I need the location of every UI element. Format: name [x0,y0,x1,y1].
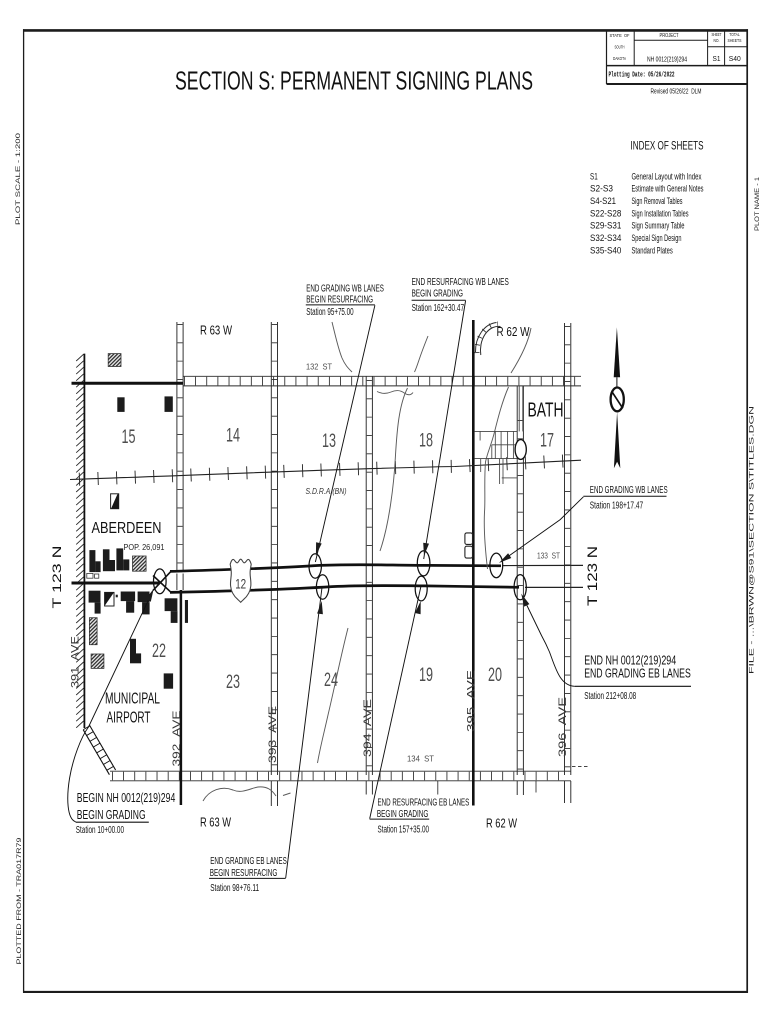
svg-text:NO.: NO. [714,38,720,44]
svg-text:SHEET: SHEET [712,32,722,38]
svg-text:395 AVE: 395 AVE [465,670,477,732]
svg-text:Station 212+08.08: Station 212+08.08 [584,691,636,702]
svg-text:END GRADING WB LANES: END GRADING WB LANES [306,283,384,294]
svg-text:General Layout with Index: General Layout with Index [632,171,702,181]
svg-text:Plotting Date: 05/26/2022: Plotting Date: 05/26/2022 [609,72,675,80]
svg-text:393 AVE: 393 AVE [267,706,279,763]
svg-text:23: 23 [226,672,240,693]
svg-text:BEGIN GRADING: BEGIN GRADING [412,288,463,299]
svg-text:S32-S34: S32-S34 [590,233,621,243]
svg-text:Station 95+75.00: Station 95+75.00 [306,307,354,318]
svg-text:END RESURFACING WB LANES: END RESURFACING WB LANES [412,277,510,288]
svg-text:394 AVE: 394 AVE [362,699,374,757]
svg-text:17: 17 [540,431,554,452]
svg-text:END GRADING EB LANES: END GRADING EB LANES [210,856,287,867]
svg-text:20: 20 [488,665,502,686]
svg-text:STATE OF: STATE OF [610,33,630,39]
svg-text:POP. 26,091: POP. 26,091 [124,542,165,552]
svg-text:BEGIN NH 0012(219)294: BEGIN NH 0012(219)294 [77,790,176,805]
svg-text:PLOT NAME - 1: PLOT NAME - 1 [754,176,761,231]
svg-text:AIRPORT: AIRPORT [107,710,151,727]
svg-text:BEGIN RESURFACING: BEGIN RESURFACING [306,295,373,306]
svg-text:R 63 W: R 63 W [200,815,232,830]
svg-text:18: 18 [419,431,433,452]
svg-text:S2-S3: S2-S3 [590,184,613,194]
svg-text:PLOTTED FROM - TRA017R79: PLOTTED FROM - TRA017R79 [16,837,23,965]
svg-text:BATH: BATH [528,400,564,422]
svg-text:S40: S40 [729,54,741,63]
svg-text:15: 15 [122,427,136,448]
svg-text:Sign Removal Tables: Sign Removal Tables [632,196,683,206]
svg-text:Estimate with General Notes: Estimate with General Notes [632,184,704,194]
svg-text:S4-S21: S4-S21 [590,196,616,206]
svg-text:DAKOTA: DAKOTA [613,56,626,62]
svg-text:24: 24 [324,670,338,691]
svg-text:Station 162+30.47: Station 162+30.47 [412,303,465,314]
svg-text:Revised 05/26/22 DLM: Revised 05/26/22 DLM [651,86,702,95]
svg-text:Station 98+76.11: Station 98+76.11 [210,883,259,894]
svg-text:END GRADING WB LANES: END GRADING WB LANES [590,485,668,496]
svg-text:SOUTH: SOUTH [615,45,625,51]
svg-text:19: 19 [419,665,433,686]
svg-text:FILE - ...\BRWN@S91\SECTION S\: FILE - ...\BRWN@S91\SECTION S\TITLES.DGN [749,405,756,674]
svg-text:134 ST: 134 ST [407,754,434,764]
svg-text:PROJECT: PROJECT [660,33,680,39]
svg-text:396 AVE: 396 AVE [557,697,569,757]
svg-text:R 62 W: R 62 W [497,324,531,339]
svg-text:T 123 N: T 123 N [584,546,600,606]
svg-text:Special Sign Design: Special Sign Design [632,233,682,243]
svg-text:T 123 N: T 123 N [52,546,64,609]
svg-text:BEGIN RESURFACING: BEGIN RESURFACING [210,868,278,879]
svg-text:Sign Summary Table: Sign Summary Table [632,221,685,231]
svg-text:END GRADING EB LANES: END GRADING EB LANES [584,665,691,680]
svg-text:MUNICIPAL: MUNICIPAL [105,691,160,708]
svg-text:NH 0012(219)294: NH 0012(219)294 [647,54,687,63]
svg-text:BEGIN GRADING: BEGIN GRADING [377,809,429,820]
svg-text:PLOT SCALE - 1:200: PLOT SCALE - 1:200 [15,132,22,225]
svg-text:R 62 W: R 62 W [486,816,518,831]
svg-text:Station 10+00.00: Station 10+00.00 [76,825,125,836]
svg-text:S29-S31: S29-S31 [590,221,621,231]
svg-text:BEGIN GRADING: BEGIN GRADING [77,807,146,822]
svg-text:S22-S28: S22-S28 [590,208,621,218]
svg-text:SHEETS: SHEETS [728,38,742,44]
svg-text:S.D.R.A.(BN): S.D.R.A.(BN) [306,486,347,496]
svg-text:22: 22 [152,641,166,662]
svg-text:END RESURFACING EB LANES: END RESURFACING EB LANES [378,798,470,809]
svg-text:391 AVE: 391 AVE [70,636,82,688]
svg-text:S35-S40: S35-S40 [590,245,621,255]
svg-text:12: 12 [235,577,246,592]
svg-text:S1: S1 [713,54,721,63]
svg-text:132 ST: 132 ST [306,362,332,372]
svg-text:INDEX OF SHEETS: INDEX OF SHEETS [631,141,704,153]
svg-text:ABERDEEN: ABERDEEN [92,520,162,537]
svg-text:392 AVE: 392 AVE [171,711,183,767]
svg-text:SECTION S: PERMANENT SIGNING P: SECTION S: PERMANENT SIGNING PLANS [175,67,533,95]
svg-text:Station 198+17.47: Station 198+17.47 [590,500,643,511]
svg-text:133 ST: 133 ST [537,551,560,561]
svg-text:TOTAL: TOTAL [729,32,740,38]
svg-text:14: 14 [226,426,240,447]
svg-text:Sign Installation Tables: Sign Installation Tables [632,208,689,218]
svg-text:13: 13 [322,431,336,452]
svg-text:Station 157+35.00: Station 157+35.00 [378,825,430,836]
svg-text:R 63 W: R 63 W [200,323,233,338]
svg-text:Standard Plates: Standard Plates [632,245,674,255]
svg-text:S1: S1 [590,171,598,181]
